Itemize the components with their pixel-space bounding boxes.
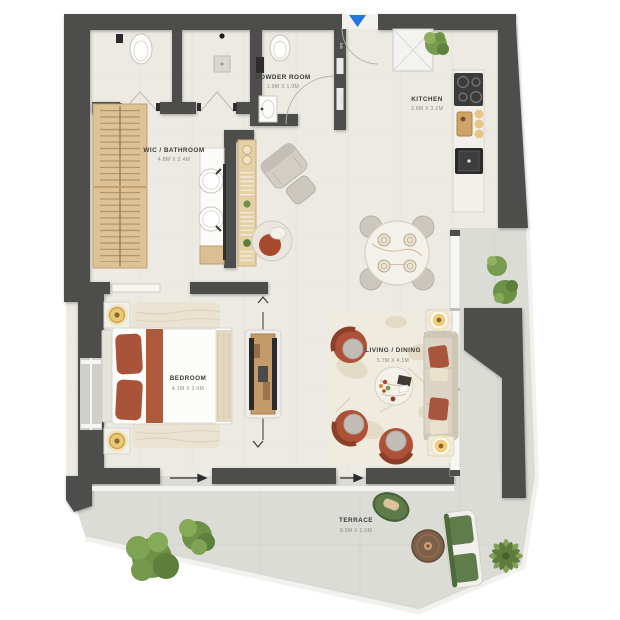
wall-bottom-1 [92, 468, 160, 484]
nightstand-top [104, 302, 130, 328]
sofa [424, 332, 458, 440]
wall-bottom-3 [366, 468, 454, 484]
vanity [199, 148, 226, 264]
powder-room-dims: 1.9M X 1.0M [267, 84, 299, 90]
nightstand-bottom [104, 428, 130, 454]
db-wall-tag: DB [339, 43, 343, 49]
left-wall-upper [64, 14, 90, 302]
kitchen-label: KITCHEN [411, 96, 443, 103]
side-table-bottom [428, 436, 454, 456]
terrace-curb [92, 486, 454, 491]
wall-bottom-2 [212, 468, 336, 484]
powder-wall-panel [256, 57, 264, 73]
sofa-cushion [428, 397, 449, 421]
tv-screen-living-side [272, 338, 277, 410]
cooktop [454, 73, 483, 106]
living-furniture [326, 310, 458, 464]
vanity-cabinet [200, 246, 224, 264]
dining-set [360, 216, 434, 290]
wall-terrace-stub [66, 476, 92, 512]
powder-room-label: POWDER ROOM [255, 74, 310, 81]
terrace-palm [489, 539, 523, 573]
wic-bathroom-dims: 4.8M X 2.4M [158, 157, 190, 163]
bed-runner [146, 329, 163, 423]
wc-wall-fixture [116, 34, 123, 43]
hall-round-chair [252, 221, 292, 261]
coffee-table [375, 367, 413, 405]
wall-wc-divider [172, 26, 182, 106]
kitchen-dims: 3.6M X 3.1M [411, 106, 443, 112]
bedroom-dims: 4.1M X 3.0M [172, 386, 204, 392]
onu-wall-tag: ONU [339, 93, 343, 103]
floorplan-svg: DB ONU [0, 0, 620, 620]
bedroom-label: BEDROOM [170, 375, 207, 382]
bedroom-window [80, 358, 102, 430]
right-wall-kitchen [498, 26, 528, 228]
floorplan-canvas: DB ONU [0, 0, 620, 620]
bed-pillow [115, 333, 143, 374]
top-wall-right [378, 14, 516, 30]
living-dining-dims: 5.7M X 4.1M [377, 358, 409, 364]
bed-pillow [115, 379, 143, 420]
armchair [379, 428, 413, 462]
kitchen-sink [455, 148, 483, 174]
tv-screen-bedroom-side [249, 338, 254, 410]
vanity-mirror [223, 164, 226, 260]
top-wall-left [66, 14, 342, 30]
cutting-board [457, 110, 483, 139]
wall-bedroom-top-right [190, 282, 268, 294]
bedroom-furniture [102, 302, 232, 454]
bed-headboard [102, 330, 112, 422]
shower-head-icon [219, 33, 224, 38]
terrace-dims: 8.5M X 1.5M [340, 528, 372, 534]
wall-wc-stub-2 [160, 102, 196, 114]
sofa-cushion [428, 345, 450, 369]
terrace-round-table [412, 530, 444, 562]
wic-bathroom-label: WIC / BATHROOM [143, 147, 204, 154]
living-dining-label: LIVING / DINING [365, 347, 421, 354]
side-table-top [426, 310, 452, 331]
wardrobe [93, 104, 147, 268]
wall-wc-stub-3 [236, 102, 250, 114]
wall-bedroom-top-left [78, 282, 110, 294]
terrace-label: TERRACE [339, 517, 373, 524]
bedroom-sliding-door-leaf [112, 284, 160, 292]
